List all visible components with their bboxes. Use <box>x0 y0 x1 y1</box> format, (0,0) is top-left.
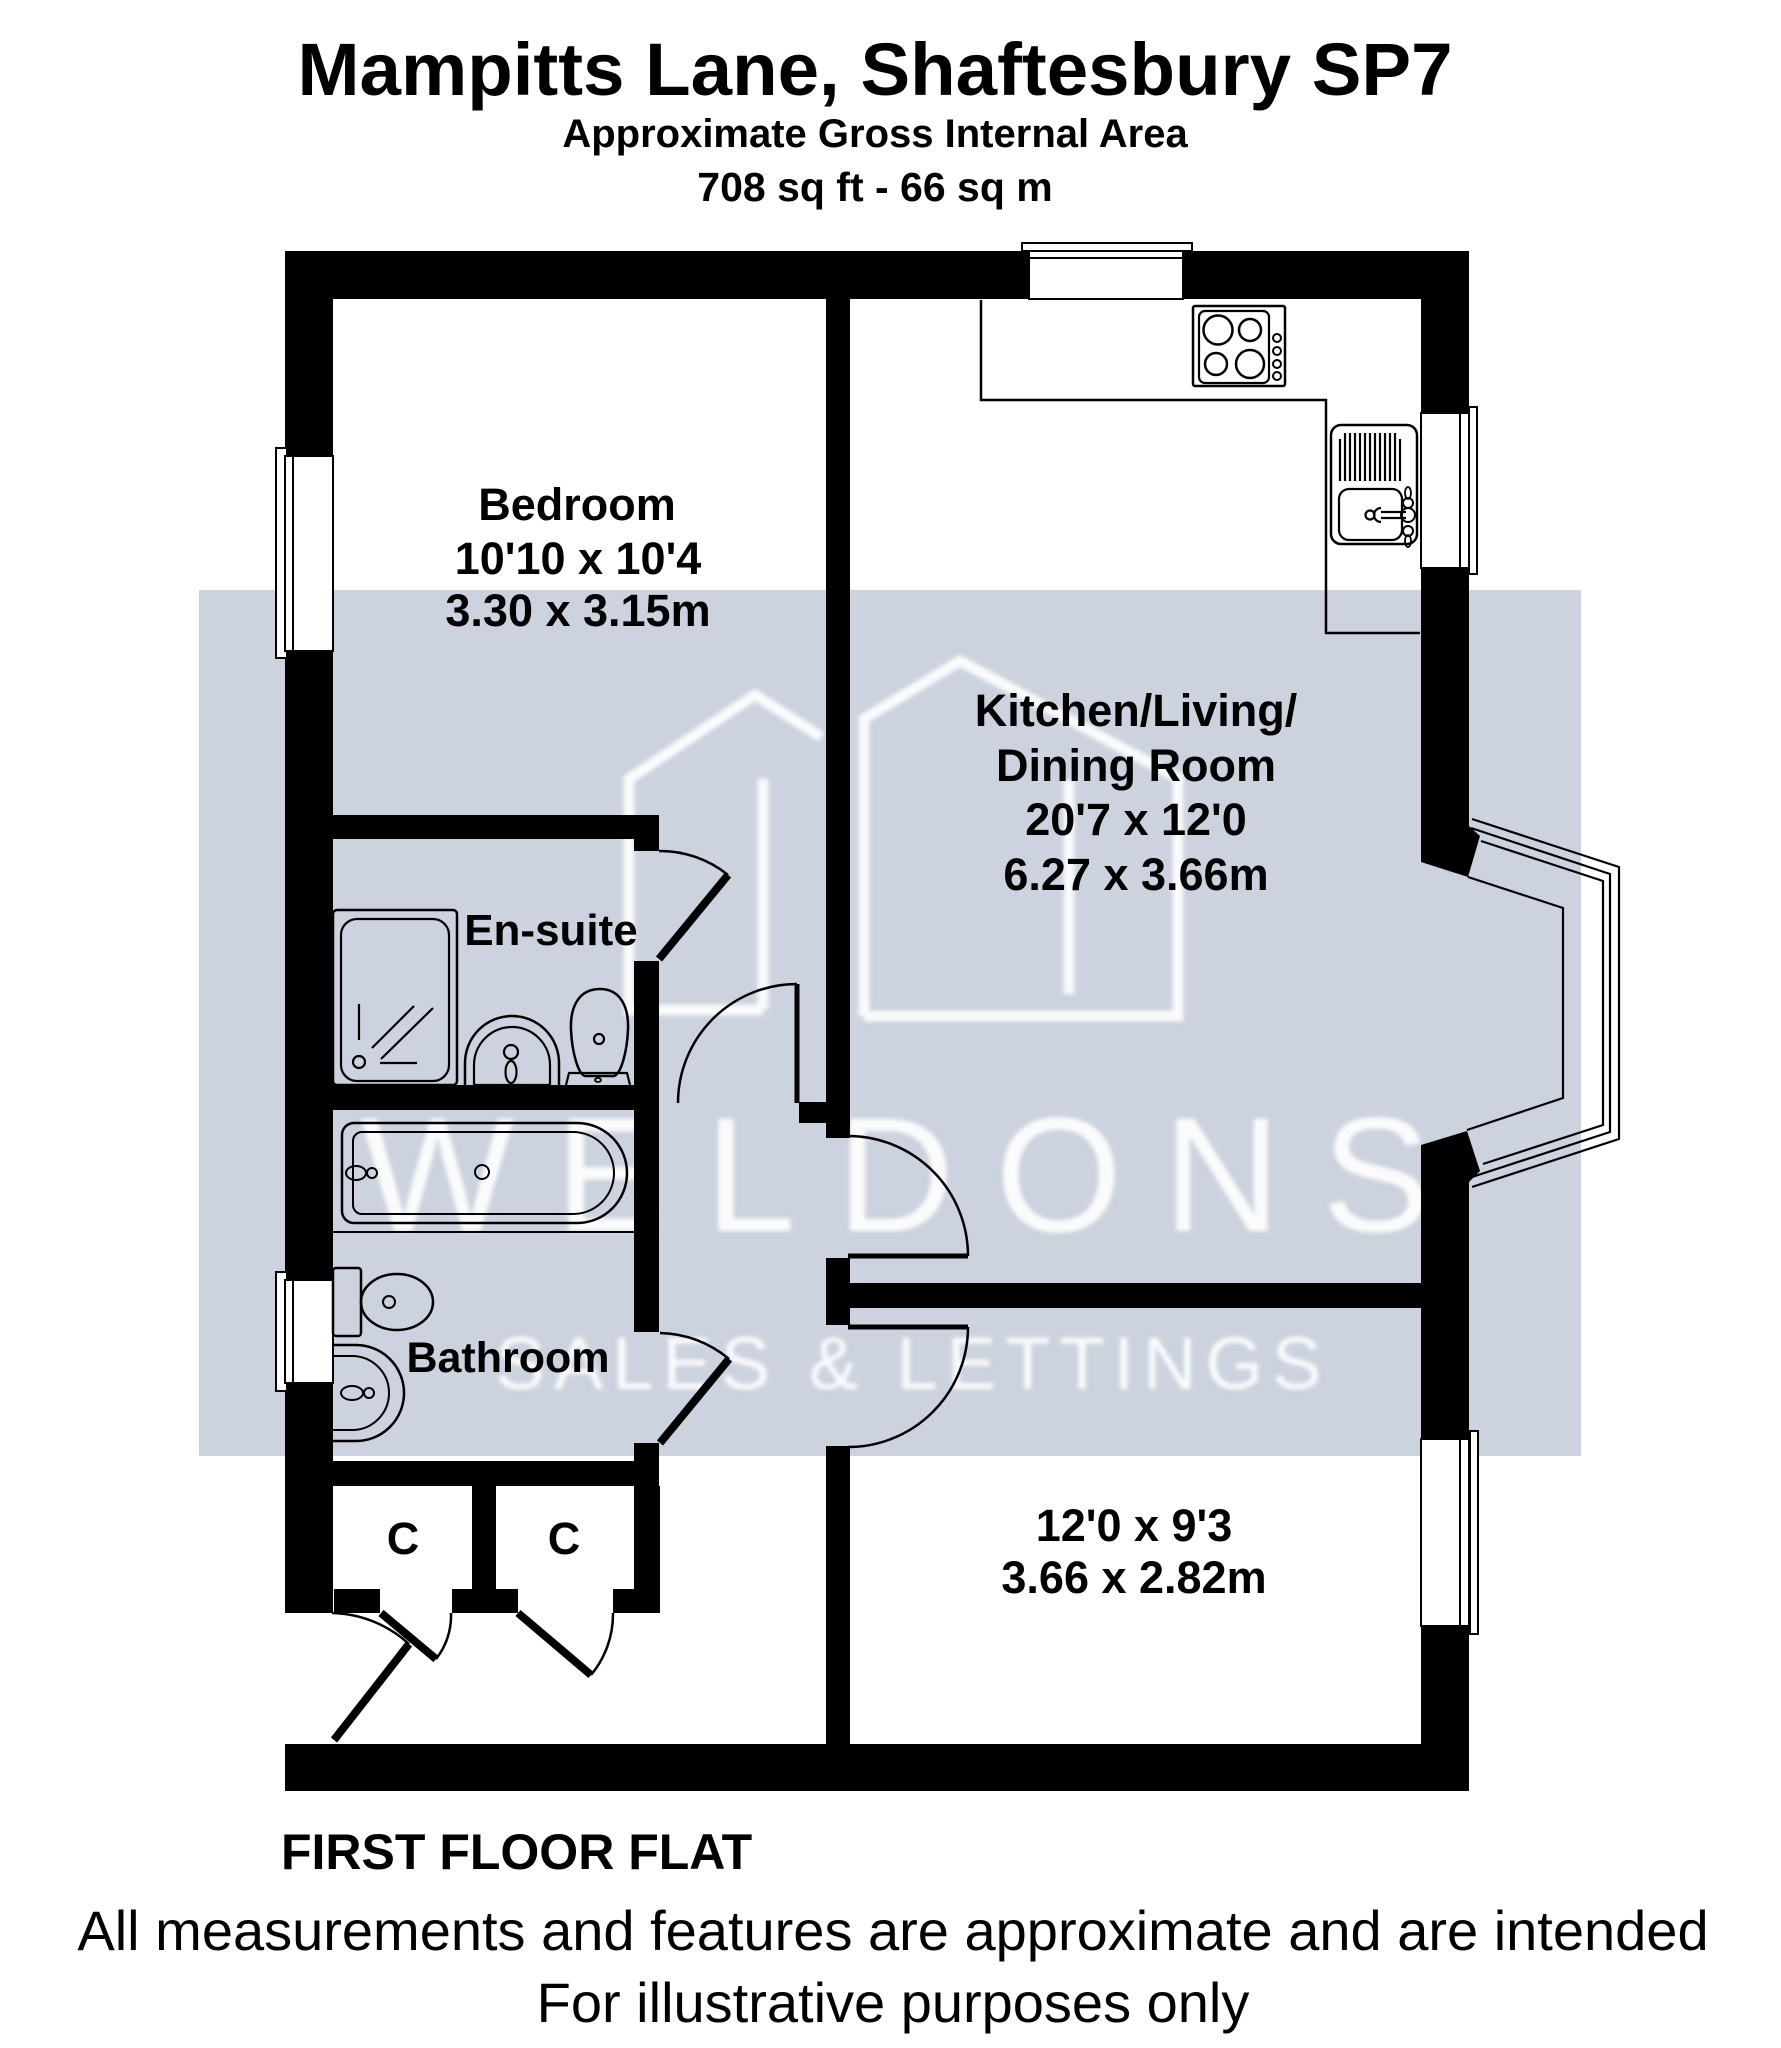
svg-text:3.66 x 2.82m: 3.66 x 2.82m <box>1001 1552 1266 1603</box>
svg-text:Dining Room: Dining Room <box>996 740 1276 791</box>
svg-text:FIRST FLOOR FLAT: FIRST FLOOR FLAT <box>281 1824 752 1880</box>
svg-text:Bedroom: Bedroom <box>478 479 676 530</box>
svg-text:C: C <box>548 1513 581 1564</box>
svg-text:For illustrative purposes only: For illustrative purposes only <box>537 1971 1250 2034</box>
svg-text:3.30 x 3.15m: 3.30 x 3.15m <box>445 585 710 636</box>
svg-text:10'10 x 10'4: 10'10 x 10'4 <box>455 533 702 584</box>
svg-text:20'7 x 12'0: 20'7 x 12'0 <box>1025 794 1247 845</box>
svg-text:708 sq ft - 66 sq m: 708 sq ft - 66 sq m <box>697 164 1052 210</box>
svg-text:Kitchen/Living/: Kitchen/Living/ <box>975 685 1298 736</box>
svg-text:En-suite: En-suite <box>464 906 638 955</box>
svg-text:Approximate Gross Internal Are: Approximate Gross Internal Area <box>562 112 1188 156</box>
svg-text:Bathroom: Bathroom <box>406 1334 609 1382</box>
svg-text:Mampitts Lane, Shaftesbury SP7: Mampitts Lane, Shaftesbury SP7 <box>297 28 1452 111</box>
svg-text:C: C <box>387 1513 420 1564</box>
svg-text:6.27 x 3.66m: 6.27 x 3.66m <box>1003 849 1268 900</box>
svg-text:WELDONS: WELDONS <box>360 1083 1471 1266</box>
svg-text:SALES & LETTINGS: SALES & LETTINGS <box>496 1322 1331 1405</box>
svg-text:12'0 x 9'3: 12'0 x 9'3 <box>1036 1500 1233 1551</box>
svg-text:All measurements and features: All measurements and features are approx… <box>77 1899 1708 1962</box>
